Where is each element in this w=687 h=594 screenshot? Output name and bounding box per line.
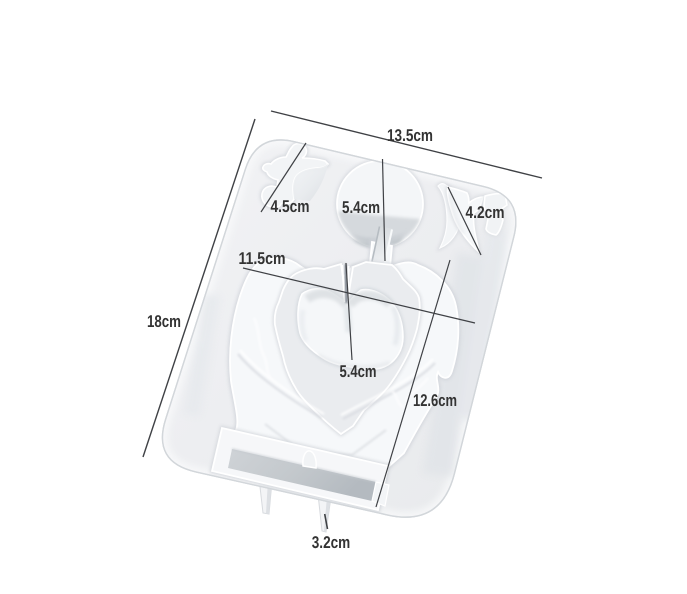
svg-text:11.5cm: 11.5cm <box>239 249 286 268</box>
svg-text:3.2cm: 3.2cm <box>312 533 351 552</box>
svg-text:12.6cm: 12.6cm <box>413 391 457 410</box>
svg-text:5.4cm: 5.4cm <box>340 362 377 381</box>
svg-text:4.5cm: 4.5cm <box>271 197 310 216</box>
svg-text:4.2cm: 4.2cm <box>466 203 505 222</box>
svg-text:13.5cm: 13.5cm <box>387 126 433 145</box>
svg-text:5.4cm: 5.4cm <box>342 198 380 217</box>
svg-text:18cm: 18cm <box>147 312 181 331</box>
